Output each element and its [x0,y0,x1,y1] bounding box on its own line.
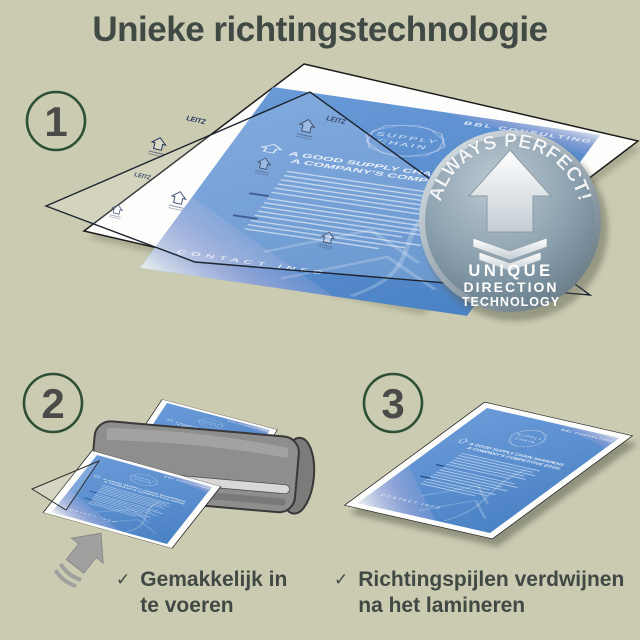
caption-easy-feed: ✓ Gemakkelijk in te voeren [116,567,336,618]
step-number-1: 1 [44,98,67,145]
checkmark-icon: ✓ [116,570,130,618]
caption-line: te voeren [140,593,287,619]
caption-arrows-disappear: ✓ Richtingspijlen verdwijnen na het lami… [334,567,634,618]
illustration: BBL CONSULTING SUPPLY CHAIN A GOOD SUPPL… [0,0,640,640]
badge-line-technology: TECHNOLOGY [462,295,560,309]
checkmark-icon: ✓ [334,570,348,618]
caption-line: Richtingspijlen verdwijnen [358,567,624,593]
step-circle-1: 1 [27,92,85,150]
badge-line-unique: UNIQUE [468,262,553,280]
step-circle-3: 3 [364,374,422,432]
gray-direction-arrow-icon [49,521,117,593]
badge-line-direction: DIRECTION [464,279,559,295]
caption-line: na het lamineren [358,593,624,619]
step-circle-2: 2 [24,374,82,432]
step2-laminator-illustration [32,399,317,592]
caption-line: Gemakkelijk in [140,567,287,593]
step-number-3: 3 [381,380,404,427]
step-number-2: 2 [41,380,64,427]
brand-mark: LEITZ [186,115,207,126]
